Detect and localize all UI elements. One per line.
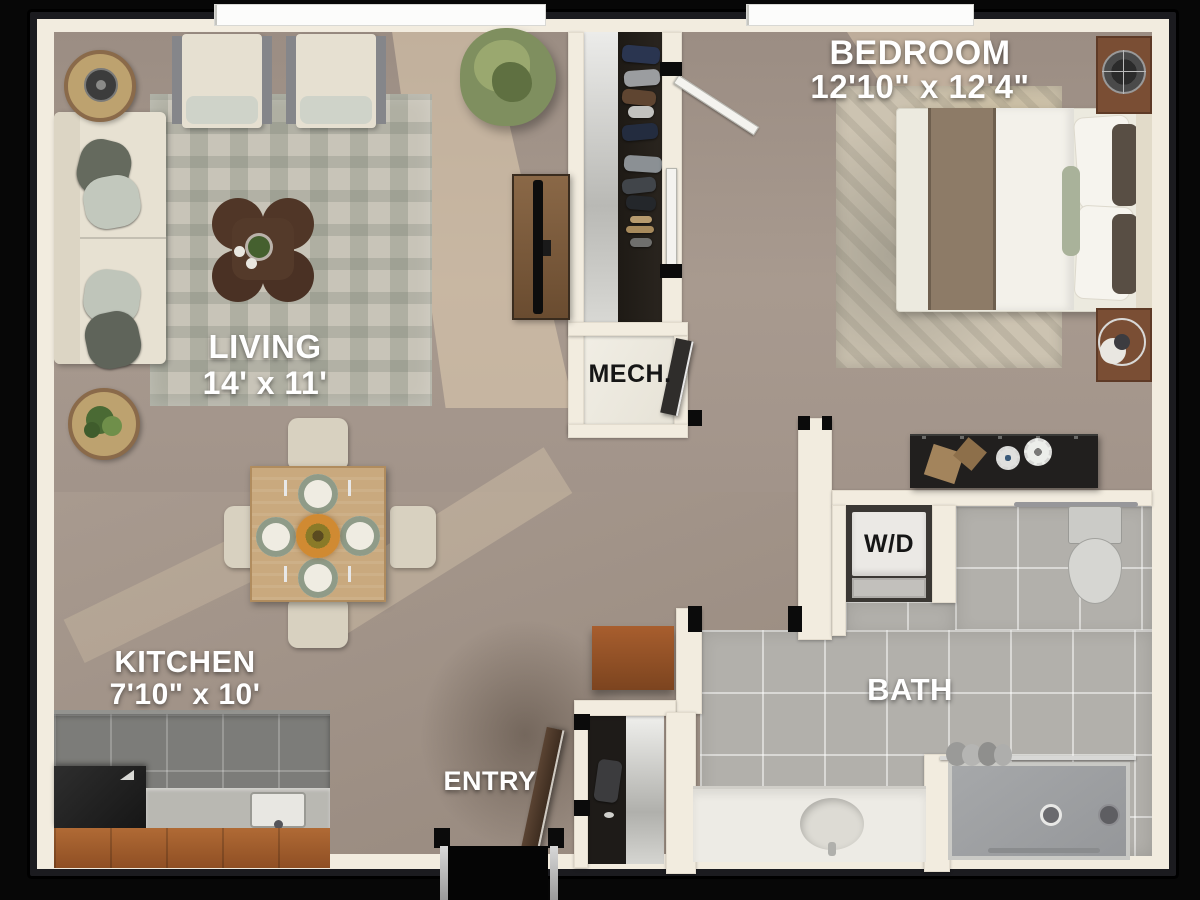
washer-dryer-label: W/D [852,530,926,559]
nightstand-lamp-cross [1123,50,1124,94]
wall [568,424,688,438]
door-jamb [660,264,682,278]
coffee-table-cup [246,258,257,269]
bath-floor-tile [955,505,1152,636]
coffee-table-plant [248,236,270,258]
closet-clothes [628,106,654,118]
sofa-backrest [54,112,80,364]
cutlery [348,480,351,496]
side-table-tray-dot [96,80,106,90]
wall [574,716,588,868]
side-table-plant [84,422,100,438]
wall [666,712,696,874]
bedroom-dims: 12'10" x 12'4" [780,68,1060,106]
place-setting [298,474,338,514]
pantry-cabinet [592,626,674,690]
nightstand-lamp-cross [1102,71,1146,72]
closet-clothes [623,69,660,87]
coat-closet-door-panel [626,716,664,864]
closet-clothes [626,226,654,233]
door-jamb [798,416,810,430]
bed-throw-blanket [928,108,996,310]
side-table-plant [102,416,122,436]
living-room-dims: 14' x 11' [150,365,380,402]
door-jamb [688,410,702,426]
dining-chair [288,418,348,468]
accent-chair-cushion [300,96,372,124]
door-jamb [548,828,564,848]
cutlery [284,480,287,496]
tv [533,180,543,314]
bed-pillow-dark [1112,214,1138,294]
potted-plant-leaves [492,62,532,102]
shower-drain [1040,804,1062,826]
closet-clothes [630,238,652,247]
dresser-knobs [922,436,1086,439]
wall [568,322,688,336]
entry-door-frame [550,846,558,900]
accent-chair-arm [172,36,182,124]
centerpiece-flowers [296,514,340,558]
door-jamb [688,606,702,632]
wall [568,32,584,434]
door-jamb [434,828,450,848]
cutlery [284,566,287,582]
wall [832,505,846,636]
entry-exterior [448,846,548,900]
entry-door-frame [440,846,448,900]
nightstand-lamp [1102,50,1146,94]
shower-grab-bar [988,848,1100,853]
bath-label: BATH [850,672,970,708]
closet-clothes [621,122,658,141]
door-jamb [574,800,590,816]
washer-dryer-drawer [852,578,926,598]
place-setting [340,516,380,556]
closet-clothes [621,44,660,64]
accent-chair-arm [286,36,296,124]
window [746,4,974,26]
wall [924,754,950,872]
window [214,4,546,26]
place-setting [298,558,338,598]
door-jamb [574,714,590,730]
wall [932,505,956,603]
kitchen-cabinets [54,828,330,868]
accent-chair-arm [262,36,272,124]
living-room-label: LIVING [150,328,380,366]
cutlery [348,566,351,582]
dining-chair [390,506,436,568]
accent-chair-arm [376,36,386,124]
dresser-decor-gear [996,446,1020,470]
dining-chair [288,600,348,648]
mech-room-label: MECH. [584,360,676,389]
shower-head [1098,804,1120,826]
door-jamb [788,606,802,632]
closet-clothes [623,155,662,174]
coat-closet-shoes [604,812,614,818]
closet-clothes [625,195,656,212]
nightstand-lamp-center [1114,334,1130,350]
sofa-seam [80,237,166,239]
door-jamb [660,62,682,76]
place-setting [256,517,296,557]
wall [798,418,832,640]
bed-headboard [1136,112,1152,310]
tv-bracket [543,240,551,256]
bed-pillow-dark [1112,124,1138,206]
closet-clothes [630,216,652,223]
closet-door-leaf [666,168,677,272]
bed-pillow-accent [1062,166,1080,256]
accent-chair-cushion [186,96,258,124]
coffee-table-cup [234,246,245,257]
vanity-faucet [828,842,836,856]
kitchen-dims: 7'10" x 10' [80,678,290,712]
entry-label: ENTRY [430,766,550,797]
floor-plan: LIVING 14' x 11' BEDROOM 12'10" x 12'4" … [0,0,1200,900]
kitchen-label: KITCHEN [90,644,280,680]
dresser-decor-gear [1024,438,1052,466]
shower-curtain [994,744,1012,766]
door-jamb [822,416,832,430]
closet-door-panel [584,32,618,322]
